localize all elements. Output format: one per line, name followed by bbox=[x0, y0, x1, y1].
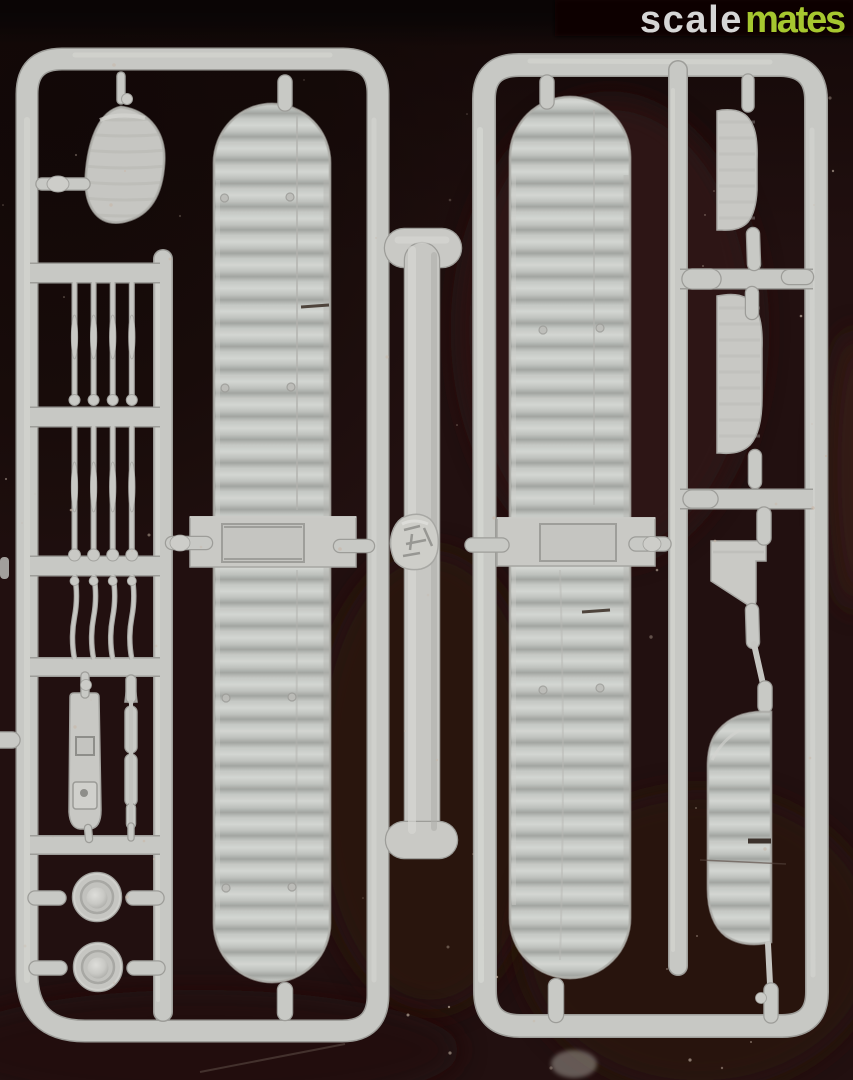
svg-text:scale: scale bbox=[640, 0, 743, 41]
svg-text:mates: mates bbox=[745, 0, 845, 41]
